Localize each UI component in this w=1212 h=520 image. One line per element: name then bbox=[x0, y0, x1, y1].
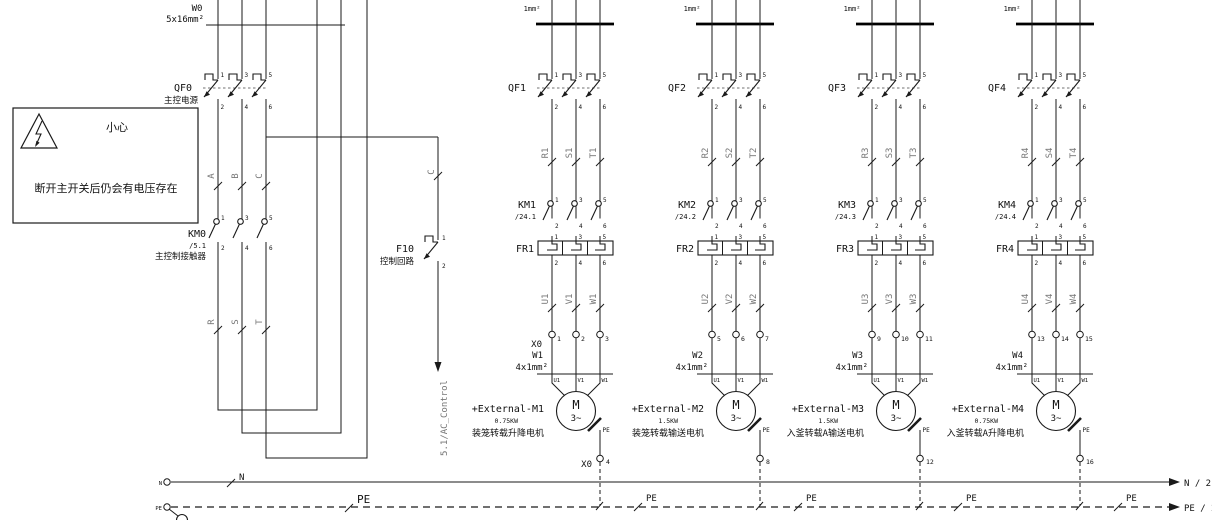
motor-terminal: U1 bbox=[1034, 378, 1041, 384]
branch-breaker[interactable]: QF1 1 3 5 2 4 6 bbox=[508, 72, 607, 111]
branch-breaker[interactable]: QF4 1 3 5 2 4 6 bbox=[988, 72, 1087, 111]
terminal-number: 11 bbox=[925, 335, 933, 343]
terminal-block-label: X0 bbox=[531, 340, 542, 350]
bus-destination: N / 2.1 bbox=[1184, 479, 1212, 489]
schematic-page: W0 5x16mm² QF0 主控电源 1 3 5 2 4 6 bbox=[0, 0, 1212, 520]
pin-number: 6 bbox=[269, 104, 273, 111]
wire-label: W4 bbox=[1069, 294, 1079, 305]
motor-desc: 入釜转载A输送电机 bbox=[787, 427, 864, 439]
motor-wire-labels: U3 V3 W3 bbox=[861, 294, 924, 312]
motor-terminal: W1 bbox=[1082, 378, 1089, 384]
down-arrow bbox=[435, 362, 442, 372]
pin-number: 5 bbox=[763, 197, 767, 204]
wire-label: S bbox=[231, 319, 241, 324]
branch-contactor[interactable]: KM2 /24.2 1 3 5 2 4 6 bbox=[675, 197, 767, 230]
warning-title: 小心 bbox=[106, 121, 128, 134]
motor-desc: 装笼转载升降电机 bbox=[472, 427, 544, 439]
pin-number: 2 bbox=[555, 223, 559, 230]
pin-number: 3 bbox=[579, 72, 583, 79]
pe-terminal[interactable] bbox=[757, 455, 764, 462]
relay-label: FR1 bbox=[516, 244, 534, 255]
motor-wire-labels: U4 V4 W4 bbox=[1021, 294, 1084, 312]
wire-label: U2 bbox=[701, 294, 711, 305]
wire-label: R1 bbox=[541, 148, 551, 159]
pin-number: 5 bbox=[1083, 72, 1087, 79]
terminal-number: 10 bbox=[901, 335, 909, 343]
pin-number: 6 bbox=[923, 104, 927, 111]
wire-label: U3 bbox=[861, 294, 871, 305]
pin-number: 4 bbox=[899, 260, 903, 267]
branch-overload-relay[interactable]: FR2 1 3 5 2 4 6 bbox=[676, 234, 773, 267]
pe-bus-label: PE bbox=[966, 494, 977, 504]
pe-terminal[interactable] bbox=[1077, 455, 1084, 462]
breaker-label: QF0 bbox=[174, 83, 192, 94]
branch-breaker[interactable]: QF2 1 3 5 2 4 6 bbox=[668, 72, 767, 111]
wire-label: R4 bbox=[1021, 148, 1031, 159]
wire-label: R3 bbox=[861, 148, 871, 159]
wire-label: W2 bbox=[749, 294, 759, 305]
motor[interactable]: U1 V1 W1 M 3~ +External-M3 1.5KW 入釜转载A输送… bbox=[787, 378, 929, 439]
pin-number: 1 bbox=[715, 197, 719, 204]
pin-number: 4 bbox=[899, 223, 903, 230]
wire-label: C bbox=[255, 173, 265, 178]
pin-number: 5 bbox=[1083, 234, 1087, 241]
branch-wire-labels: R1 S1 T1 bbox=[541, 148, 604, 166]
branch-overload-relay[interactable]: FR4 1 3 5 2 4 6 bbox=[996, 234, 1093, 267]
wire-label: W3 bbox=[909, 294, 919, 305]
wire-label: V2 bbox=[725, 294, 735, 305]
wire-label: A bbox=[207, 173, 217, 179]
pin-number: 1 bbox=[1035, 234, 1039, 241]
pin-number: 3 bbox=[899, 234, 903, 241]
pin-number: 1 bbox=[715, 234, 719, 241]
pin-number: 2 bbox=[442, 263, 446, 270]
schematic-canvas: W0 5x16mm² QF0 主控电源 1 3 5 2 4 6 bbox=[0, 0, 1212, 520]
branch-cable-size: 1mm² bbox=[844, 5, 861, 13]
control-destination: 5.1/AC_Control bbox=[440, 380, 450, 456]
pin-number: 3 bbox=[739, 234, 743, 241]
motor-power: 0.75KW bbox=[975, 417, 999, 425]
terminal-number: 15 bbox=[1085, 335, 1093, 343]
pin-number: 1 bbox=[555, 72, 559, 79]
breaker-label: QF4 bbox=[988, 83, 1006, 94]
terminal-number: 6 bbox=[741, 335, 745, 343]
right-arrow bbox=[1169, 503, 1180, 511]
breaker-label: QF2 bbox=[668, 83, 686, 94]
contactor-ref: /24.2 bbox=[675, 213, 696, 221]
pin-number: 6 bbox=[603, 104, 607, 111]
pe-terminal-number: 12 bbox=[926, 458, 934, 466]
pin-number: 6 bbox=[603, 223, 607, 230]
pin-number: 1 bbox=[875, 197, 879, 204]
motor[interactable]: U1 V1 W1 M 3~ +External-M4 0.75KW 入釜转载A升… bbox=[947, 378, 1089, 439]
pin-number: 5 bbox=[603, 234, 607, 241]
pin-number: 6 bbox=[603, 260, 607, 267]
wire-label: T1 bbox=[589, 148, 599, 159]
terminal-number: 14 bbox=[1061, 335, 1069, 343]
wire-label: B bbox=[231, 173, 241, 178]
wire-label: R2 bbox=[701, 148, 711, 159]
outgoing-wire-labels: R S T bbox=[207, 319, 270, 334]
pin-number: 5 bbox=[269, 72, 273, 79]
motor-tag: +External-M2 bbox=[632, 404, 704, 415]
branch-wire-labels: R2 S2 T2 bbox=[701, 148, 764, 166]
pin-number: 1 bbox=[715, 72, 719, 79]
terminal-strip[interactable]: X0 1 2 3 bbox=[531, 331, 609, 350]
pin-number: 6 bbox=[763, 223, 767, 230]
pin-number: 6 bbox=[923, 260, 927, 267]
pin-number: 4 bbox=[1059, 223, 1063, 230]
pin-number: 4 bbox=[579, 223, 583, 230]
motor-3ph: 3~ bbox=[731, 414, 742, 424]
pin-number: 5 bbox=[269, 215, 273, 222]
pin-number: 4 bbox=[579, 104, 583, 111]
motor-terminal: W1 bbox=[602, 378, 609, 384]
pin-number: 2 bbox=[1035, 104, 1039, 111]
pin-number: 4 bbox=[245, 104, 249, 111]
wire-label: U1 bbox=[541, 294, 551, 305]
pin-number: 2 bbox=[555, 260, 559, 267]
pin-number: 2 bbox=[875, 223, 879, 230]
terminal-number: 13 bbox=[1037, 335, 1045, 343]
pe-terminal[interactable] bbox=[597, 455, 604, 462]
pin-number: 6 bbox=[269, 245, 273, 252]
breaker-label: QF3 bbox=[828, 83, 846, 94]
pin-number: 4 bbox=[739, 223, 743, 230]
terminal-number: 7 bbox=[765, 335, 769, 343]
motor-cable-name: W2 bbox=[692, 351, 703, 361]
wire-label: T4 bbox=[1069, 148, 1079, 159]
earth-electrode bbox=[169, 509, 188, 520]
branch-breaker[interactable]: QF3 1 3 5 2 4 6 bbox=[828, 72, 927, 111]
neutral-bus: N N N / 2.1 bbox=[159, 473, 1212, 489]
contactor-ref: /24.4 bbox=[995, 213, 1016, 221]
pin-number: 1 bbox=[221, 72, 225, 79]
contactor-label: KM0 bbox=[188, 229, 206, 240]
motor-terminal: V1 bbox=[738, 378, 745, 384]
motor-power: 1.5KW bbox=[818, 417, 838, 425]
motor-cable-spec: 4x1mm² bbox=[515, 363, 548, 373]
motor-desc: 入釜转载A升降电机 bbox=[947, 427, 1024, 439]
branch-wire-labels: R3 S3 T3 bbox=[861, 148, 924, 166]
pin-number: 5 bbox=[763, 234, 767, 241]
breaker-label: F10 bbox=[396, 244, 414, 255]
pin-number: 2 bbox=[875, 104, 879, 111]
terminal-number: 5 bbox=[717, 335, 721, 343]
branch-cable-size: 1mm² bbox=[1004, 5, 1021, 13]
motor-3ph: 3~ bbox=[891, 414, 902, 424]
control-circuit-tap: C F10 控制回路 1 2 5.1/AC_Control bbox=[380, 137, 450, 456]
bus-wire-label: N bbox=[239, 473, 244, 483]
contactor-desc: 主控制接触器 bbox=[155, 251, 207, 262]
motor-power: 1.5KW bbox=[658, 417, 678, 425]
pin-number: 1 bbox=[875, 234, 879, 241]
motor-cable-spec: 4x1mm² bbox=[995, 363, 1028, 373]
pin-number: 2 bbox=[715, 104, 719, 111]
motor-m: M bbox=[892, 398, 899, 412]
pe-bus-label: PE bbox=[646, 494, 657, 504]
motor-m: M bbox=[572, 398, 579, 412]
pe-terminal[interactable] bbox=[917, 455, 924, 462]
right-arrow bbox=[1169, 478, 1180, 486]
relay-label: FR2 bbox=[676, 244, 694, 255]
motor-desc: 装笼转载输送电机 bbox=[632, 427, 704, 439]
contactor-label: KM1 bbox=[518, 200, 536, 211]
pe-terminal-number: 8 bbox=[766, 458, 770, 466]
pin-number: 1 bbox=[555, 197, 559, 204]
motor-wire-labels: U1 V1 W1 bbox=[541, 294, 604, 312]
motor-power: 0.75KW bbox=[495, 417, 519, 425]
motor-cable-name: W3 bbox=[852, 351, 863, 361]
pin-number: 1 bbox=[1035, 197, 1039, 204]
branch-overload-relay[interactable]: FR1 1 3 5 2 4 6 bbox=[516, 234, 613, 267]
pin-number: 6 bbox=[923, 223, 927, 230]
wire-label: C bbox=[427, 169, 437, 174]
relay-label: FR4 bbox=[996, 244, 1014, 255]
pin-number: 6 bbox=[763, 260, 767, 267]
motor-cable-name: W4 bbox=[1012, 351, 1023, 361]
bus-terminal[interactable] bbox=[164, 479, 170, 485]
incomer-section: W0 5x16mm² QF0 主控电源 1 3 5 2 4 6 bbox=[155, 0, 438, 458]
wire-label: T3 bbox=[909, 148, 919, 159]
terminal-number: 1 bbox=[557, 335, 561, 343]
motor-pe-connection: PE 16 PE bbox=[1068, 418, 1137, 511]
wire-label: S1 bbox=[565, 148, 575, 159]
branch-contactor[interactable]: KM1 /24.1 1 3 5 2 4 6 bbox=[515, 197, 607, 230]
pin-number: 5 bbox=[923, 197, 927, 204]
breaker-desc: 主控电源 bbox=[164, 95, 199, 106]
motor-wire-labels: U2 V2 W2 bbox=[701, 294, 764, 312]
wire-label: V4 bbox=[1045, 294, 1055, 305]
pin-number: 6 bbox=[763, 104, 767, 111]
motor-cable-name: W1 bbox=[532, 351, 543, 361]
terminal-strip[interactable]: 13 14 15 bbox=[1029, 331, 1093, 343]
wire-label: T2 bbox=[749, 148, 759, 159]
pin-number: 1 bbox=[1035, 72, 1039, 79]
pe-bus-label: PE bbox=[1126, 494, 1137, 504]
terminal-number: 3 bbox=[605, 335, 609, 343]
wire-label: S3 bbox=[885, 148, 895, 159]
wire-label: W1 bbox=[589, 294, 599, 305]
pin-number: 4 bbox=[245, 245, 249, 252]
branch-contactor[interactable]: KM3 /24.3 1 3 5 2 4 6 bbox=[835, 197, 927, 230]
pe-wire-label: PE bbox=[763, 427, 771, 434]
motor-terminal: V1 bbox=[578, 378, 585, 384]
pin-number: 5 bbox=[923, 72, 927, 79]
wire-label: U4 bbox=[1021, 294, 1031, 305]
pin-number: 1 bbox=[555, 234, 559, 241]
wire-label: R bbox=[207, 319, 217, 325]
motor-terminal: U1 bbox=[874, 378, 881, 384]
pe-terminal-number: 16 bbox=[1086, 458, 1094, 466]
bus-wire-label: PE bbox=[357, 493, 370, 506]
pin-number: 2 bbox=[1035, 260, 1039, 267]
motor-terminal: V1 bbox=[898, 378, 905, 384]
wire-label: V1 bbox=[565, 294, 575, 305]
motor-branch: 1mm² QF4 1 3 5 2 4 6 R4 S4 T4 bbox=[947, 0, 1137, 511]
contactor-label: KM4 bbox=[998, 200, 1016, 211]
pin-number: 3 bbox=[1059, 72, 1063, 79]
branch-wire-labels: R4 S4 T4 bbox=[1021, 148, 1084, 166]
pin-number: 4 bbox=[1059, 104, 1063, 111]
pin-number: 2 bbox=[221, 245, 225, 252]
pin-number: 2 bbox=[715, 223, 719, 230]
relay-label: FR3 bbox=[836, 244, 854, 255]
motor-terminal: U1 bbox=[714, 378, 721, 384]
pin-number: 4 bbox=[739, 104, 743, 111]
motor-3ph: 3~ bbox=[571, 414, 582, 424]
branch-cable-size: 1mm² bbox=[684, 5, 701, 13]
pin-number: 3 bbox=[245, 72, 249, 79]
wire-label: V3 bbox=[885, 294, 895, 305]
contactor-ref: /5.1 bbox=[189, 242, 206, 250]
motor-3ph: 3~ bbox=[1051, 414, 1062, 424]
terminal-strip[interactable]: 9 10 11 bbox=[869, 331, 933, 343]
pin-number: 1 bbox=[875, 72, 879, 79]
breaker-desc: 控制回路 bbox=[380, 256, 415, 267]
bus-terminal-label: PE bbox=[155, 506, 162, 512]
pin-number: 6 bbox=[1083, 104, 1087, 111]
contactor-label: KM2 bbox=[678, 200, 696, 211]
pin-number: 4 bbox=[579, 260, 583, 267]
pin-number: 3 bbox=[899, 72, 903, 79]
pin-number: 3 bbox=[1059, 197, 1063, 204]
pin-number: 5 bbox=[603, 197, 607, 204]
wire-label: S2 bbox=[725, 148, 735, 159]
motor-terminal: W1 bbox=[922, 378, 929, 384]
branch-cable-size: 1mm² bbox=[524, 5, 541, 13]
wire-label: S4 bbox=[1045, 148, 1055, 159]
pin-number: 3 bbox=[899, 197, 903, 204]
branch-contactor[interactable]: KM4 /24.4 1 3 5 2 4 6 bbox=[995, 197, 1087, 230]
pin-number: 3 bbox=[579, 234, 583, 241]
pe-terminal-number: 4 bbox=[606, 458, 610, 466]
pe-wire-label: PE bbox=[923, 427, 931, 434]
pe-bus-label: PE bbox=[806, 494, 817, 504]
motor-terminal: U1 bbox=[554, 378, 561, 384]
motor-branch: 1mm² QF1 1 3 5 2 4 6 R1 S1 T1 bbox=[472, 0, 657, 511]
pin-number: 2 bbox=[715, 260, 719, 267]
incoming-cable-spec: 5x16mm² bbox=[166, 15, 204, 25]
pin-number: 6 bbox=[1083, 223, 1087, 230]
warning-text: 断开主开关后仍会有电压存在 bbox=[35, 181, 178, 195]
motor-tag: +External-M1 bbox=[472, 404, 544, 415]
motor-cable-spec: 4x1mm² bbox=[835, 363, 868, 373]
incoming-cable-name: W0 bbox=[192, 4, 203, 14]
motor-m: M bbox=[1052, 398, 1059, 412]
pe-wire-label: PE bbox=[603, 427, 611, 434]
contactor-ref: /24.3 bbox=[835, 213, 856, 221]
pin-number: 1 bbox=[221, 215, 225, 222]
pin-number: 2 bbox=[555, 104, 559, 111]
pin-number: 5 bbox=[923, 234, 927, 241]
pin-number: 6 bbox=[1083, 260, 1087, 267]
bus-terminal-label: N bbox=[159, 481, 162, 487]
pin-number: 4 bbox=[899, 104, 903, 111]
terminal-number: 9 bbox=[877, 335, 881, 343]
pin-number: 3 bbox=[739, 72, 743, 79]
control-breaker-f10[interactable]: F10 控制回路 1 2 bbox=[380, 235, 446, 270]
pin-number: 4 bbox=[739, 260, 743, 267]
pe-terminal-block: X0 bbox=[581, 460, 592, 470]
pin-number: 2 bbox=[1035, 223, 1039, 230]
motor-tag: +External-M3 bbox=[792, 404, 864, 415]
pin-number: 5 bbox=[1083, 197, 1087, 204]
pin-number: 3 bbox=[739, 197, 743, 204]
pin-number: 5 bbox=[763, 72, 767, 79]
pe-wire-label: PE bbox=[1083, 427, 1091, 434]
pin-number: 2 bbox=[875, 260, 879, 267]
wire-label: T bbox=[255, 319, 265, 325]
pin-number: 3 bbox=[579, 197, 583, 204]
incomer-wires bbox=[206, 0, 438, 458]
bus-destination: PE / 2.1 bbox=[1184, 504, 1212, 514]
terminal-number: 2 bbox=[581, 335, 585, 343]
pin-number: 5 bbox=[603, 72, 607, 79]
breaker-label: QF1 bbox=[508, 83, 526, 94]
pin-number: 3 bbox=[245, 215, 249, 222]
phase-wire-labels: A B C bbox=[207, 173, 270, 190]
pin-number: 4 bbox=[1059, 260, 1063, 267]
pin-number: 1 bbox=[442, 235, 446, 242]
contactor-ref: /24.1 bbox=[515, 213, 536, 221]
motor-terminal: V1 bbox=[1058, 378, 1065, 384]
warning-box: 小心 断开主开关后仍会有电压存在 bbox=[13, 108, 198, 223]
motor-terminal: W1 bbox=[762, 378, 769, 384]
pe-bus: PE PE PE / 2.1 bbox=[155, 493, 1212, 520]
pin-number: 2 bbox=[221, 104, 225, 111]
motor-m: M bbox=[732, 398, 739, 412]
motor-cable-spec: 4x1mm² bbox=[675, 363, 708, 373]
motor-tag: +External-M4 bbox=[952, 404, 1024, 415]
branch-overload-relay[interactable]: FR3 1 3 5 2 4 6 bbox=[836, 234, 933, 267]
contactor-label: KM3 bbox=[838, 200, 856, 211]
pin-number: 3 bbox=[1059, 234, 1063, 241]
